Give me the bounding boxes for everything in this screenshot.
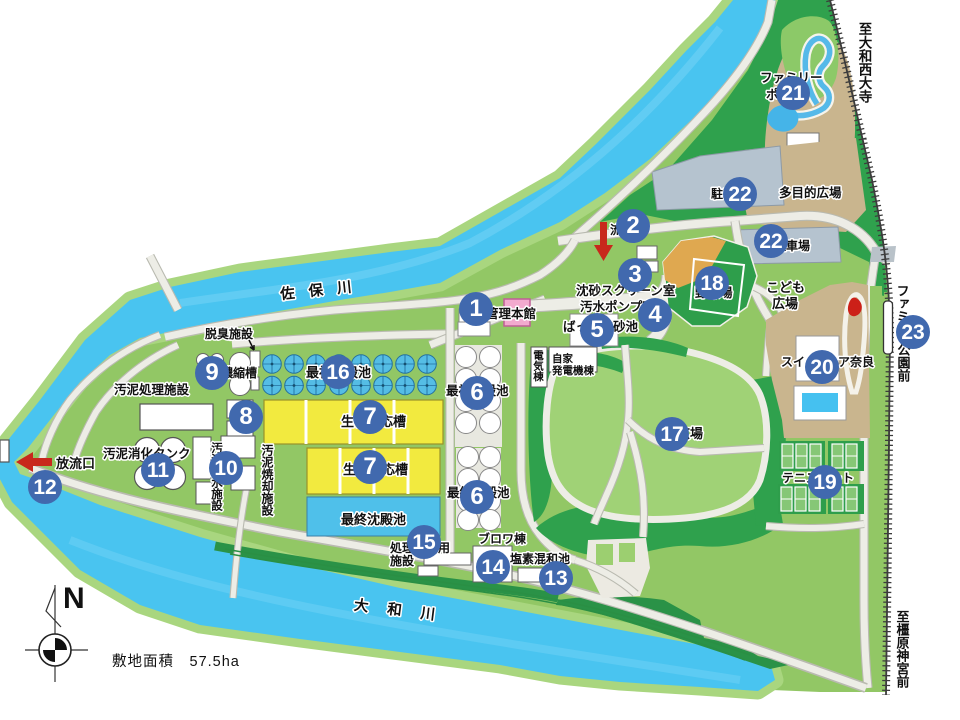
svg-text:汚泥処理施設: 汚泥処理施設 xyxy=(114,382,190,397)
svg-text:スイ: スイ xyxy=(781,355,805,369)
svg-text:施設: 施設 xyxy=(390,553,415,568)
svg-text:放流口: 放流口 xyxy=(55,456,95,471)
svg-text:16: 16 xyxy=(326,361,349,384)
svg-text:7: 7 xyxy=(363,403,376,430)
svg-text:12: 12 xyxy=(33,476,56,499)
svg-text:公園前: 公園前 xyxy=(896,343,911,383)
svg-text:電気棟: 電気棟 xyxy=(532,350,544,382)
svg-text:6: 6 xyxy=(470,483,483,510)
svg-text:発電機棟: 発電機棟 xyxy=(551,364,594,377)
svg-text:7: 7 xyxy=(363,453,376,480)
svg-text:6: 6 xyxy=(470,379,483,406)
svg-text:ブロワ棟: ブロワ棟 xyxy=(478,531,527,546)
svg-text:広場: 広場 xyxy=(772,296,798,311)
svg-text:敷地面積 57.5ha: 敷地面積 57.5ha xyxy=(112,653,240,670)
svg-text:22: 22 xyxy=(728,183,751,206)
svg-text:5: 5 xyxy=(590,316,603,343)
svg-text:20: 20 xyxy=(810,356,833,379)
svg-text:4: 4 xyxy=(648,301,662,328)
svg-text:汚泥焼却施設: 汚泥焼却施設 xyxy=(260,443,274,517)
svg-text:自家: 自家 xyxy=(552,352,573,365)
svg-text:14: 14 xyxy=(481,556,505,579)
svg-text:21: 21 xyxy=(781,82,805,105)
svg-text:17: 17 xyxy=(660,423,683,446)
svg-text:15: 15 xyxy=(412,531,436,554)
svg-text:10: 10 xyxy=(214,457,237,480)
svg-text:13: 13 xyxy=(544,567,567,590)
svg-text:至橿原神宮前: 至橿原神宮前 xyxy=(895,610,910,689)
svg-text:22: 22 xyxy=(759,230,782,253)
svg-text:ア奈良: ア奈良 xyxy=(838,354,874,369)
svg-text:2: 2 xyxy=(626,212,639,239)
svg-text:至大和西大寺: 至大和西大寺 xyxy=(857,22,873,105)
svg-text:3: 3 xyxy=(628,261,641,288)
svg-text:23: 23 xyxy=(901,321,924,344)
svg-text:こども: こども xyxy=(766,280,805,295)
svg-text:8: 8 xyxy=(239,403,252,430)
svg-text:多目的広場: 多目的広場 xyxy=(779,185,842,200)
svg-text:脱臭施設: 脱臭施設 xyxy=(205,326,254,341)
svg-text:1: 1 xyxy=(469,295,482,322)
svg-text:管理本館: 管理本館 xyxy=(486,306,536,321)
svg-text:19: 19 xyxy=(813,471,836,494)
svg-text:N: N xyxy=(63,582,85,615)
svg-text:18: 18 xyxy=(700,272,724,295)
svg-text:9: 9 xyxy=(205,359,218,386)
svg-text:最終沈殿池: 最終沈殿池 xyxy=(341,512,406,527)
svg-text:11: 11 xyxy=(147,459,170,482)
